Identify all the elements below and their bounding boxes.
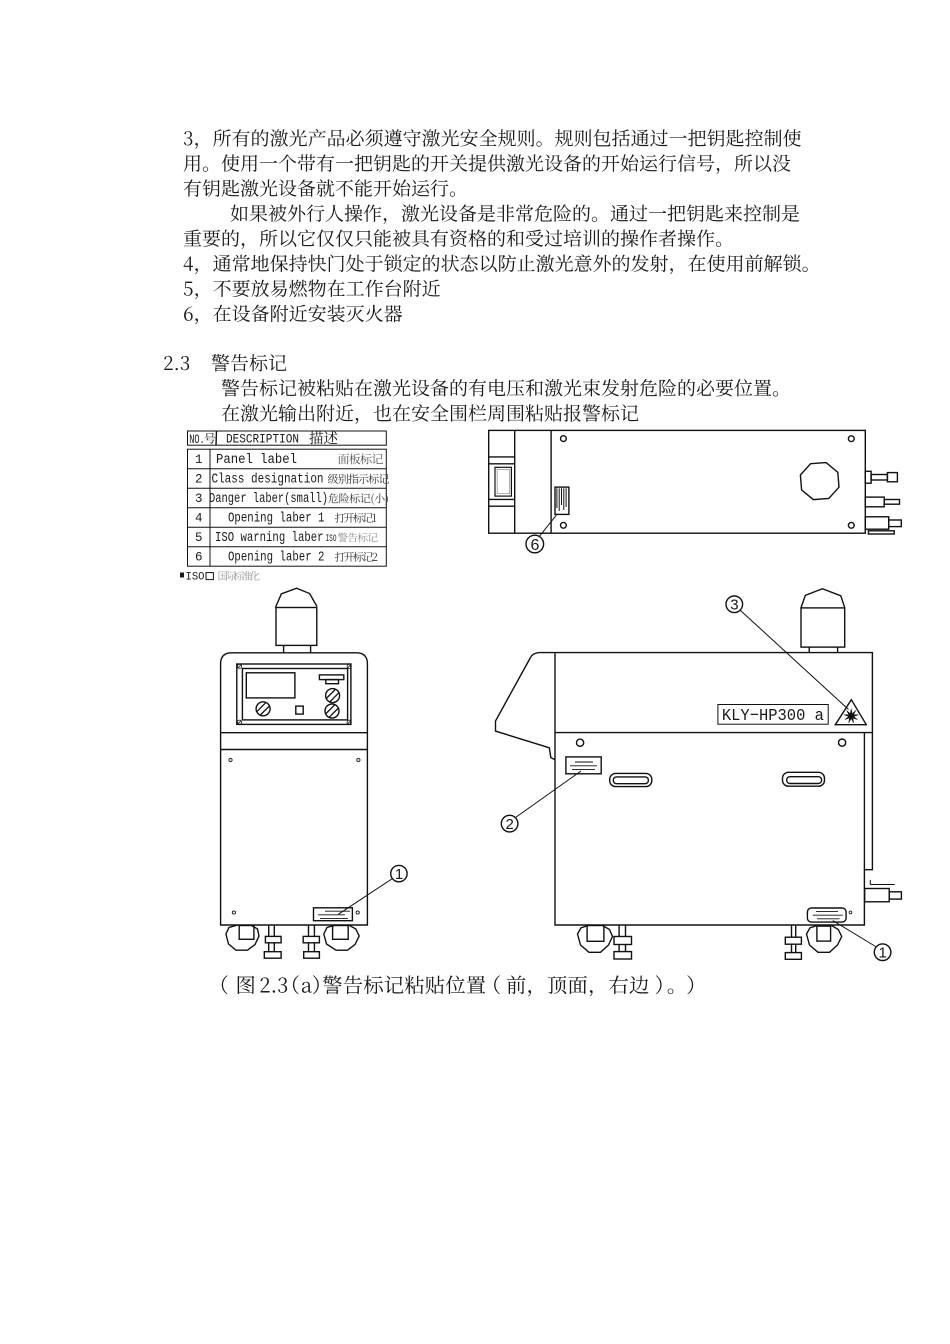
svg-text:1: 1 (195, 453, 203, 467)
svg-text:6: 6 (195, 551, 203, 565)
svg-text:3: 3 (195, 492, 203, 506)
svg-text:5: 5 (195, 531, 203, 545)
svg-text:NO.: NO. (189, 433, 205, 447)
svg-text:6: 6 (530, 537, 539, 554)
svg-text:Danger laber(small): Danger laber(small) (209, 492, 328, 507)
svg-text:3: 3 (730, 597, 738, 614)
svg-text:KLY−HP300 a: KLY−HP300 a (722, 707, 824, 726)
svg-text:2: 2 (506, 816, 514, 833)
svg-text:1: 1 (395, 866, 403, 883)
svg-text:ISO warning laber: ISO warning laber (215, 531, 324, 546)
svg-text:ISO: ISO (326, 534, 337, 545)
svg-text:4: 4 (195, 512, 203, 526)
svg-text:2: 2 (195, 473, 203, 487)
svg-text:DESCRIPTION: DESCRIPTION (226, 432, 299, 447)
svg-text:Opening laber 2: Opening laber 2 (228, 551, 325, 566)
svg-text:ISO: ISO (186, 572, 205, 584)
svg-text:Class designation: Class designation (212, 473, 324, 488)
svg-text:1: 1 (879, 945, 887, 962)
svg-text:Panel label: Panel label (216, 453, 297, 468)
svg-text:Opening laber 1: Opening laber 1 (228, 512, 325, 527)
